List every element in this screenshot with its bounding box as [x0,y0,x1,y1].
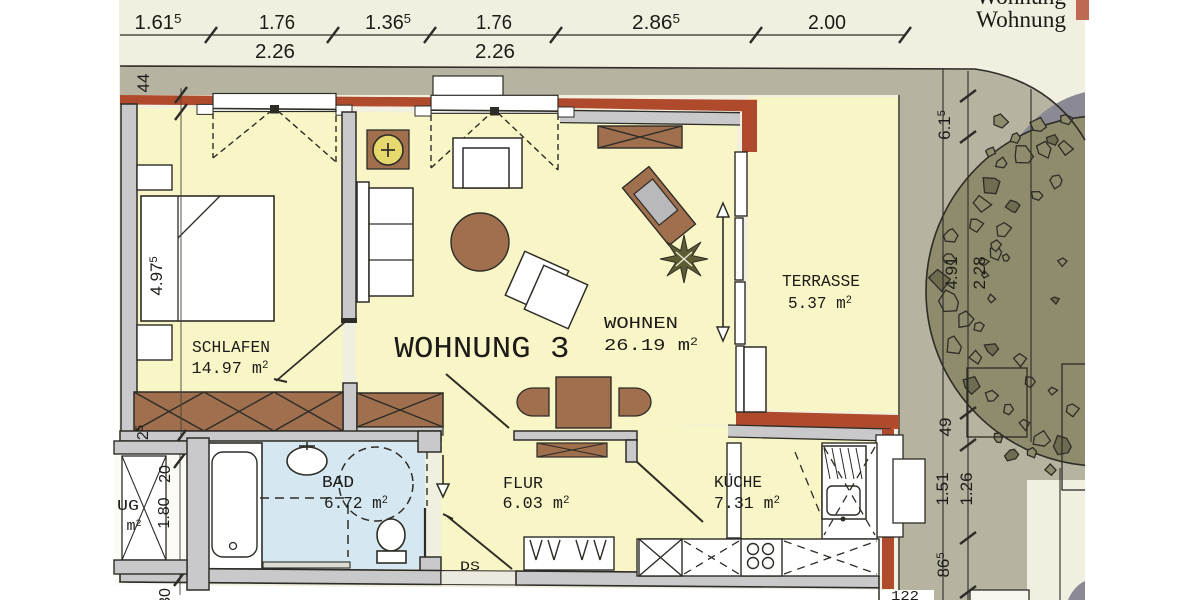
svg-text:49: 49 [936,418,955,437]
svg-text:TERRASSE: TERRASSE [782,273,860,292]
svg-text:UG: UG [117,498,139,515]
svg-text:6.03 m2: 6.03 m2 [503,495,570,514]
svg-text:44: 44 [134,74,153,93]
svg-text:WOHNUNG 3: WOHNUNG 3 [395,332,570,367]
svg-text:Wohnung: Wohnung [976,7,1066,32]
svg-text:1.51: 1.51 [933,472,952,505]
svg-text:14.97 m2: 14.97 m2 [192,360,269,379]
svg-text:1.76: 1.76 [259,12,295,34]
svg-text:6.72 m2: 6.72 m2 [324,495,388,514]
svg-text:DS: DS [460,559,480,574]
svg-text:FLUR: FLUR [503,475,543,494]
svg-text:KÜCHE: KÜCHE [714,473,762,493]
svg-text:122: 122 [891,589,919,600]
svg-text:30: 30 [157,588,174,600]
svg-text:2.28: 2.28 [970,256,989,289]
svg-text:20: 20 [157,465,174,483]
svg-text:4.91: 4.91 [942,256,961,289]
svg-text:2.26: 2.26 [475,41,515,63]
svg-text:1.76: 1.76 [476,12,512,34]
svg-text:BAD: BAD [322,474,354,493]
svg-text:2.26: 2.26 [255,41,295,63]
svg-text:WOHNEN: WOHNEN [604,315,678,334]
svg-text:7.31 m2: 7.31 m2 [714,495,780,514]
svg-text:1.26: 1.26 [957,472,976,505]
svg-text:2.00: 2.00 [808,12,846,34]
svg-text:1.80: 1.80 [156,497,173,528]
svg-text:5.37 m2: 5.37 m2 [788,295,852,314]
svg-text:26.19 m2: 26.19 m2 [604,337,698,356]
svg-text:SCHLAFEN: SCHLAFEN [192,339,270,358]
